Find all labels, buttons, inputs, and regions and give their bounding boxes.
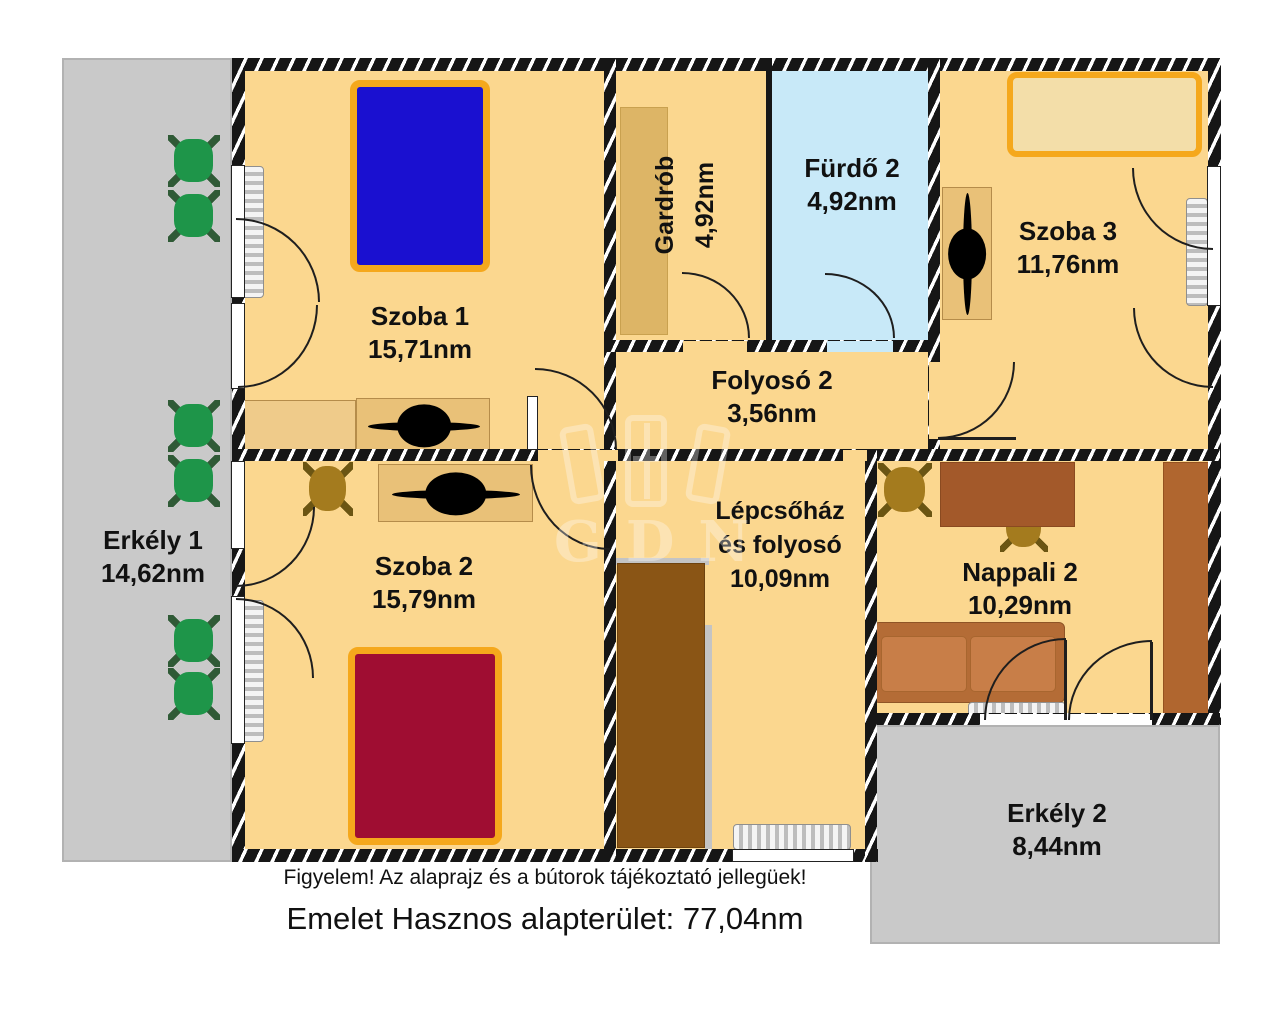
label-erkely1: Erkély 1 14,62nm — [3, 524, 303, 590]
room-name: Gardrób — [645, 120, 685, 290]
door-leaf-szoba1 — [527, 396, 538, 450]
balcony-chair-6 — [168, 668, 220, 720]
room-name: Nappali 2 — [870, 556, 1170, 589]
label-folyoso2: Folyosó 2 3,56nm — [622, 364, 922, 430]
radiator-lepcsohaz — [733, 824, 851, 850]
room-area: 8,44nm — [907, 830, 1207, 863]
room-name: Folyosó 2 — [622, 364, 922, 397]
balcony-chair-5 — [168, 615, 220, 667]
door-leaf-szoba3 — [938, 437, 1016, 440]
door-opening-gardrob — [683, 341, 747, 352]
desk-chair-icon-szoba2 — [392, 470, 520, 518]
label-nappali2: Nappali 2 10,29nm — [870, 556, 1170, 622]
table-nappali — [940, 462, 1075, 527]
room-area: 11,76nm — [918, 248, 1218, 281]
wall-top — [232, 58, 1220, 71]
room-name: Szoba 2 — [274, 550, 574, 583]
disclaimer-text: Figyelem! Az alaprajz és a bútorok tájék… — [145, 866, 945, 890]
room-name: Szoba 1 — [270, 300, 570, 333]
balcony-chair-4 — [168, 455, 220, 507]
room-area: 15,71nm — [270, 333, 570, 366]
door-leaf-nappali-b — [1150, 642, 1153, 720]
desk-chair-icon-szoba1 — [368, 402, 480, 450]
room-area: 14,62nm — [3, 557, 303, 590]
room-name: Fürdő 2 — [702, 152, 1002, 185]
room-name: Erkély 1 — [3, 524, 303, 557]
balcony-chair-3 — [168, 400, 220, 452]
door-leaf-nappali-a — [1064, 640, 1067, 720]
wall-horizontal-main — [232, 449, 1220, 461]
stairs — [617, 563, 705, 848]
label-furdo2: Fürdő 2 4,92nm — [702, 152, 1002, 218]
room-name: Szoba 3 — [918, 215, 1218, 248]
room-area: 4,92nm — [702, 185, 1002, 218]
label-szoba2: Szoba 2 15,79nm — [274, 550, 574, 616]
double-bed-szoba2 — [348, 647, 502, 845]
room-area: 10,29nm — [870, 589, 1170, 622]
room-area: 15,79nm — [274, 583, 574, 616]
floorplan-canvas: Szoba 1 15,71nm Szoba 2 15,79nm Szoba 3 … — [0, 0, 1280, 1010]
balcony-chair-2 — [168, 190, 220, 242]
bed-szoba3 — [1007, 72, 1202, 157]
opening-folyoso-lepcso — [843, 450, 867, 461]
stairs-rail — [705, 625, 712, 849]
wall-right — [1208, 58, 1221, 725]
room-name: Lépcsőház — [630, 494, 930, 528]
label-szoba3: Szoba 3 11,76nm — [918, 215, 1218, 281]
door-opening-szoba1-szoba2 — [538, 450, 618, 461]
label-erkely2: Erkély 2 8,44nm — [907, 797, 1207, 863]
room-area: 3,56nm — [622, 397, 922, 430]
dresser-szoba1 — [240, 400, 356, 452]
room-name: Erkély 2 — [907, 797, 1207, 830]
balcony-chair-1 — [168, 135, 220, 187]
window-lepcso-bottom — [732, 849, 854, 862]
double-bed-szoba1 — [350, 80, 490, 272]
total-area-text: Emelet Hasznos alapterület: 77,04nm — [145, 901, 945, 937]
door-opening-furdo — [827, 341, 893, 352]
label-szoba1: Szoba 1 15,71nm — [270, 300, 570, 366]
